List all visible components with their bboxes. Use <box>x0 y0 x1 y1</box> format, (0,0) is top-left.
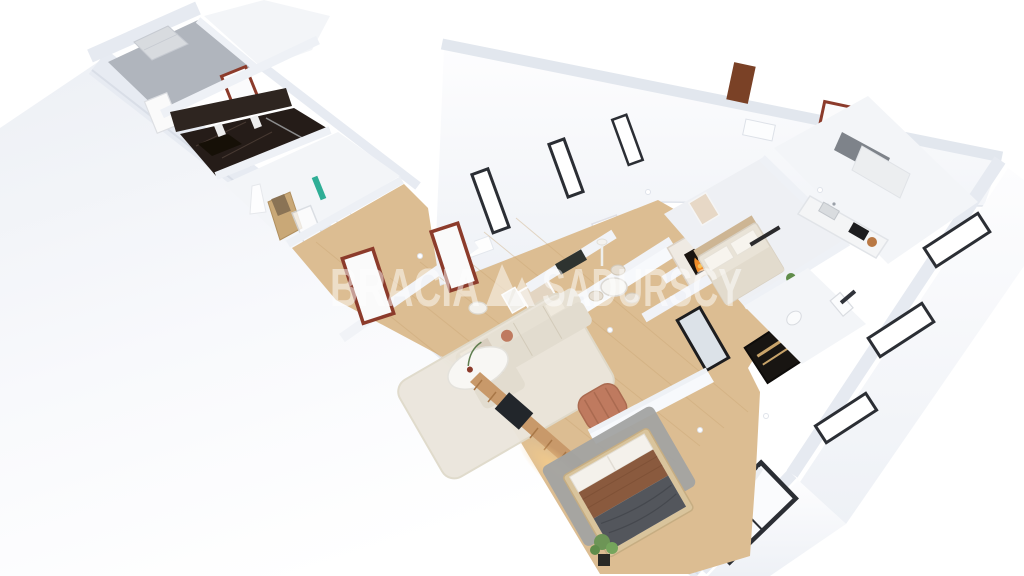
floor-plan-render: BRACIA SADURSCY <box>0 0 1024 576</box>
watermark-text-right: SADURSCY <box>542 258 742 318</box>
plant-pot <box>598 554 610 566</box>
wooden-bowl <box>867 237 877 247</box>
faucet <box>832 202 835 205</box>
watermark-text-left: BRACIA <box>330 258 480 318</box>
floor-plan-canvas: BRACIA SADURSCY <box>0 0 1024 576</box>
